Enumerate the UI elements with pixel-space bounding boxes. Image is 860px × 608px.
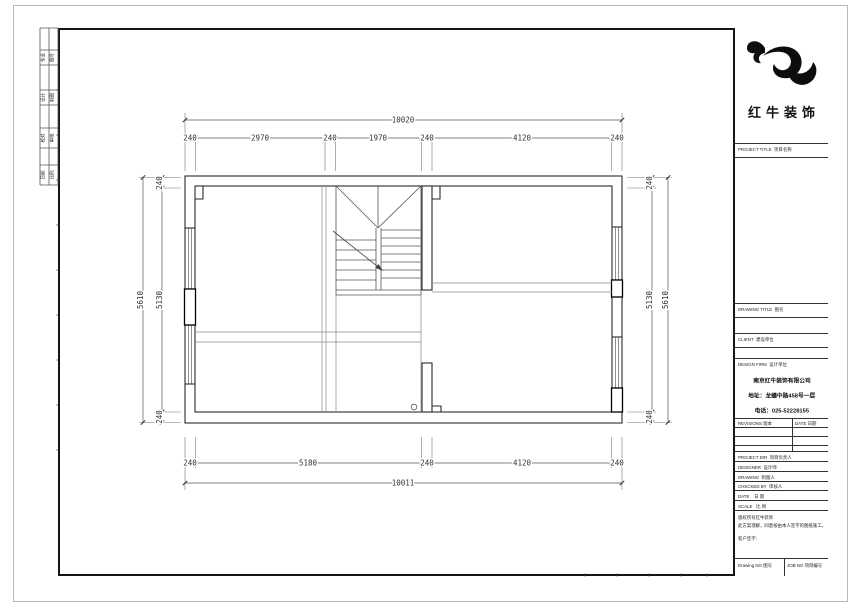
signoff-cell: 专业: [40, 53, 47, 62]
firm-name: 南京红牛装饰有限公司: [735, 376, 828, 385]
winder-diagonal: [336, 186, 378, 228]
date-header: DATE 日期: [795, 419, 828, 428]
dim-label: 4120: [513, 459, 532, 468]
corner-notch-left: [195, 186, 203, 199]
dim-label: 240: [155, 410, 164, 424]
signoff-cell: 校对: [40, 133, 47, 142]
scale-field: SCALE 比 例: [738, 502, 828, 511]
bottom-step-notch: [432, 406, 441, 412]
corner-notch-right: [432, 186, 440, 199]
project-title-field: PROJECT TITLE 项目名称: [738, 145, 828, 154]
window-left-lower: [188, 325, 191, 384]
agreement-note: 此方案理解，同意按由本人签字的图纸施工。: [738, 521, 828, 530]
signoff-cell: 制图: [49, 93, 56, 102]
dim-label: 240: [420, 134, 434, 143]
dimension-ticks: [141, 118, 670, 485]
designer-field: DESIGNER 设计师: [738, 463, 828, 472]
drawing-sheet: { "plan": { "top_total": "10020", "top_s…: [0, 0, 860, 608]
winder-diagonal: [378, 186, 421, 228]
floor-plan-canvas: 专业 图号 设计 制图 校对 审核 日期 比例: [0, 0, 860, 608]
design-firm-field: DESIGN FIRM 设计单位: [738, 360, 828, 369]
extension-lines: [139, 113, 672, 490]
dim-label: 5610: [136, 290, 145, 309]
bull-logo-icon: [747, 41, 816, 85]
dimension-labels: 10020 240 2970 240 1970 240 4120 240 240…: [136, 116, 670, 488]
interior-walls: [195, 186, 441, 412]
partition-lines: [195, 186, 612, 412]
dim-label: 240: [420, 459, 434, 468]
signoff-cell: 审核: [49, 133, 56, 142]
dimension-lines: [143, 120, 668, 483]
signoff-cell: 图号: [50, 53, 56, 62]
signoff-table: [40, 28, 58, 185]
signoff-labels: 专业 图号 设计 制图 校对 审核 日期 比例: [40, 53, 56, 180]
dim-label: 240: [323, 134, 337, 143]
wall-piers: [185, 280, 623, 412]
dim-label: 10020: [392, 116, 415, 125]
stair-direction-arrow: [333, 231, 383, 271]
client-signature-label: 客户签字：: [738, 534, 828, 543]
dim-label: 240: [183, 459, 197, 468]
signoff-cell: 设计: [40, 93, 47, 102]
staircase: [336, 186, 421, 295]
signoff-cell: 比例: [49, 170, 56, 179]
dim-label: 10011: [392, 479, 415, 488]
dim-label: 240: [610, 459, 624, 468]
dim-label: 4120: [513, 134, 532, 143]
project-dir-field: PROJECT DIR 项目负责人: [738, 453, 828, 462]
dim-label: 5180: [299, 459, 318, 468]
window-right-lower: [615, 337, 618, 388]
title-block: 红牛装饰 PROJECT TITLE 项目名称 DRAWING TITLE 图名…: [733, 28, 828, 576]
job-no-field: JOB NO 项目编号: [787, 561, 828, 570]
exterior-walls: [185, 176, 622, 423]
dim-label: 240: [645, 176, 654, 190]
dim-label: 5610: [661, 290, 670, 309]
dim-label: 5130: [645, 290, 654, 309]
dim-label: 1970: [369, 134, 388, 143]
date-field: DATE 日 期: [738, 492, 828, 501]
window-left-upper: [188, 228, 191, 289]
dim-label: 240: [645, 410, 654, 424]
dim-label: 5130: [155, 290, 164, 309]
logo: [735, 34, 830, 104]
window-right-upper: [615, 227, 618, 280]
checked-by-field: CHECKED BY 审核人: [738, 482, 828, 491]
firm-address: 地址：龙蟠中路458号一层: [735, 391, 828, 400]
drawing-by-field: DRAWING 制图人: [738, 473, 828, 482]
dim-label: 240: [183, 134, 197, 143]
signoff-cell: 日期: [41, 170, 47, 179]
drawing-title-field: DRAWING TITLE 图名: [738, 305, 828, 314]
dim-label: 240: [610, 134, 624, 143]
firm-phone: 电话：025-52228155: [735, 406, 828, 415]
client-field: CLIENT 建设单位: [738, 335, 828, 344]
dim-label: 2970: [251, 134, 270, 143]
dim-label: 240: [155, 176, 164, 190]
logo-text: 红牛装饰: [735, 102, 828, 121]
frame-ticks: [57, 90, 708, 577]
drain-symbol: [411, 404, 417, 410]
